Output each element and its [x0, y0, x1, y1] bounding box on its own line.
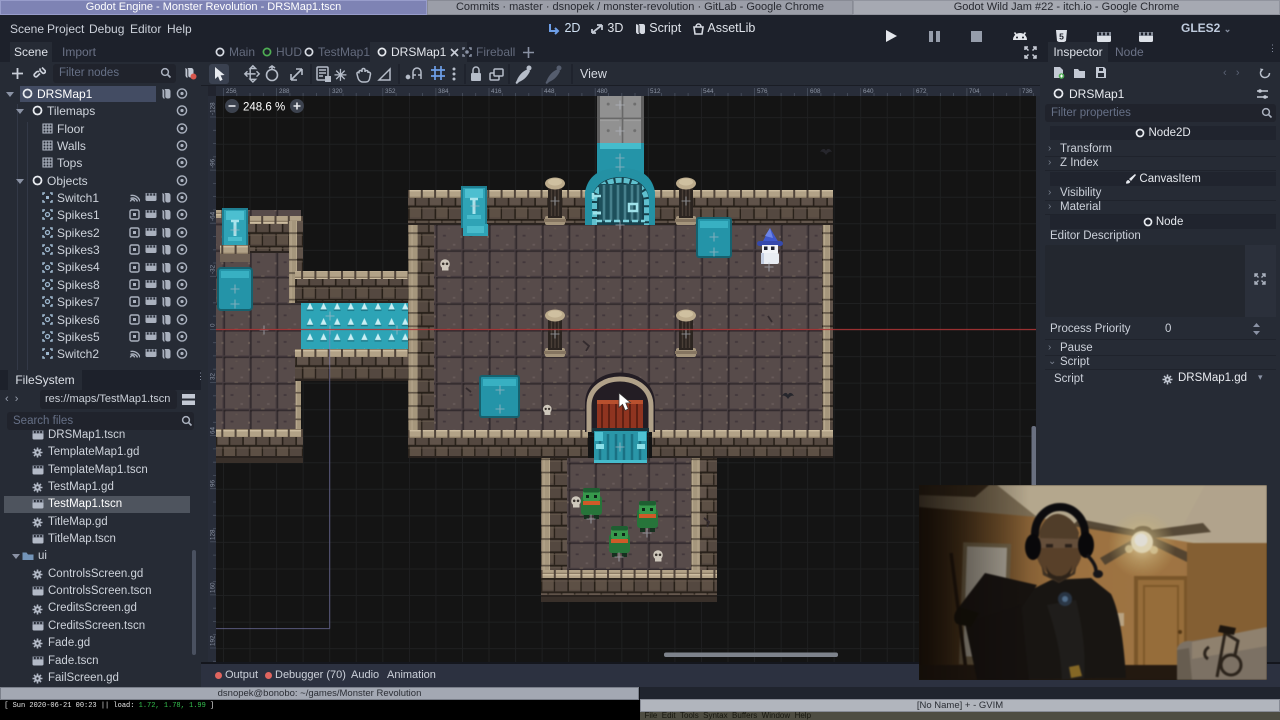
svg-text:-96: -96	[210, 158, 217, 168]
svg-text:384: 384	[438, 88, 449, 95]
svg-text:-64: -64	[210, 211, 217, 221]
svg-text:288: 288	[279, 88, 290, 95]
svg-text:320: 320	[332, 88, 343, 95]
svg-text:0: 0	[210, 323, 217, 327]
svg-text:608: 608	[810, 88, 821, 95]
svg-text:-128: -128	[210, 102, 217, 115]
svg-text:448: 448	[544, 88, 555, 95]
svg-text:480: 480	[597, 88, 608, 95]
svg-text:544: 544	[703, 88, 714, 95]
svg-text:256: 256	[226, 88, 237, 95]
svg-text:672: 672	[916, 88, 927, 95]
svg-text:160: 160	[210, 582, 217, 593]
svg-text:736: 736	[1022, 88, 1033, 95]
svg-text:96: 96	[210, 479, 217, 487]
svg-text:352: 352	[385, 88, 396, 95]
svg-text:-32: -32	[210, 264, 217, 274]
svg-text:640: 640	[863, 88, 874, 95]
svg-text:512: 512	[650, 88, 661, 95]
svg-text:704: 704	[969, 88, 980, 95]
svg-text:128: 128	[210, 529, 217, 540]
svg-text:248.6 %: 248.6 %	[243, 102, 285, 114]
svg-text:32: 32	[210, 372, 217, 380]
svg-text:5: 5	[1059, 32, 1064, 42]
svg-text:416: 416	[491, 88, 502, 95]
svg-text:192: 192	[210, 635, 217, 646]
svg-text:64: 64	[210, 426, 217, 434]
svg-text:576: 576	[757, 88, 768, 95]
svg-text:View: View	[580, 67, 608, 81]
